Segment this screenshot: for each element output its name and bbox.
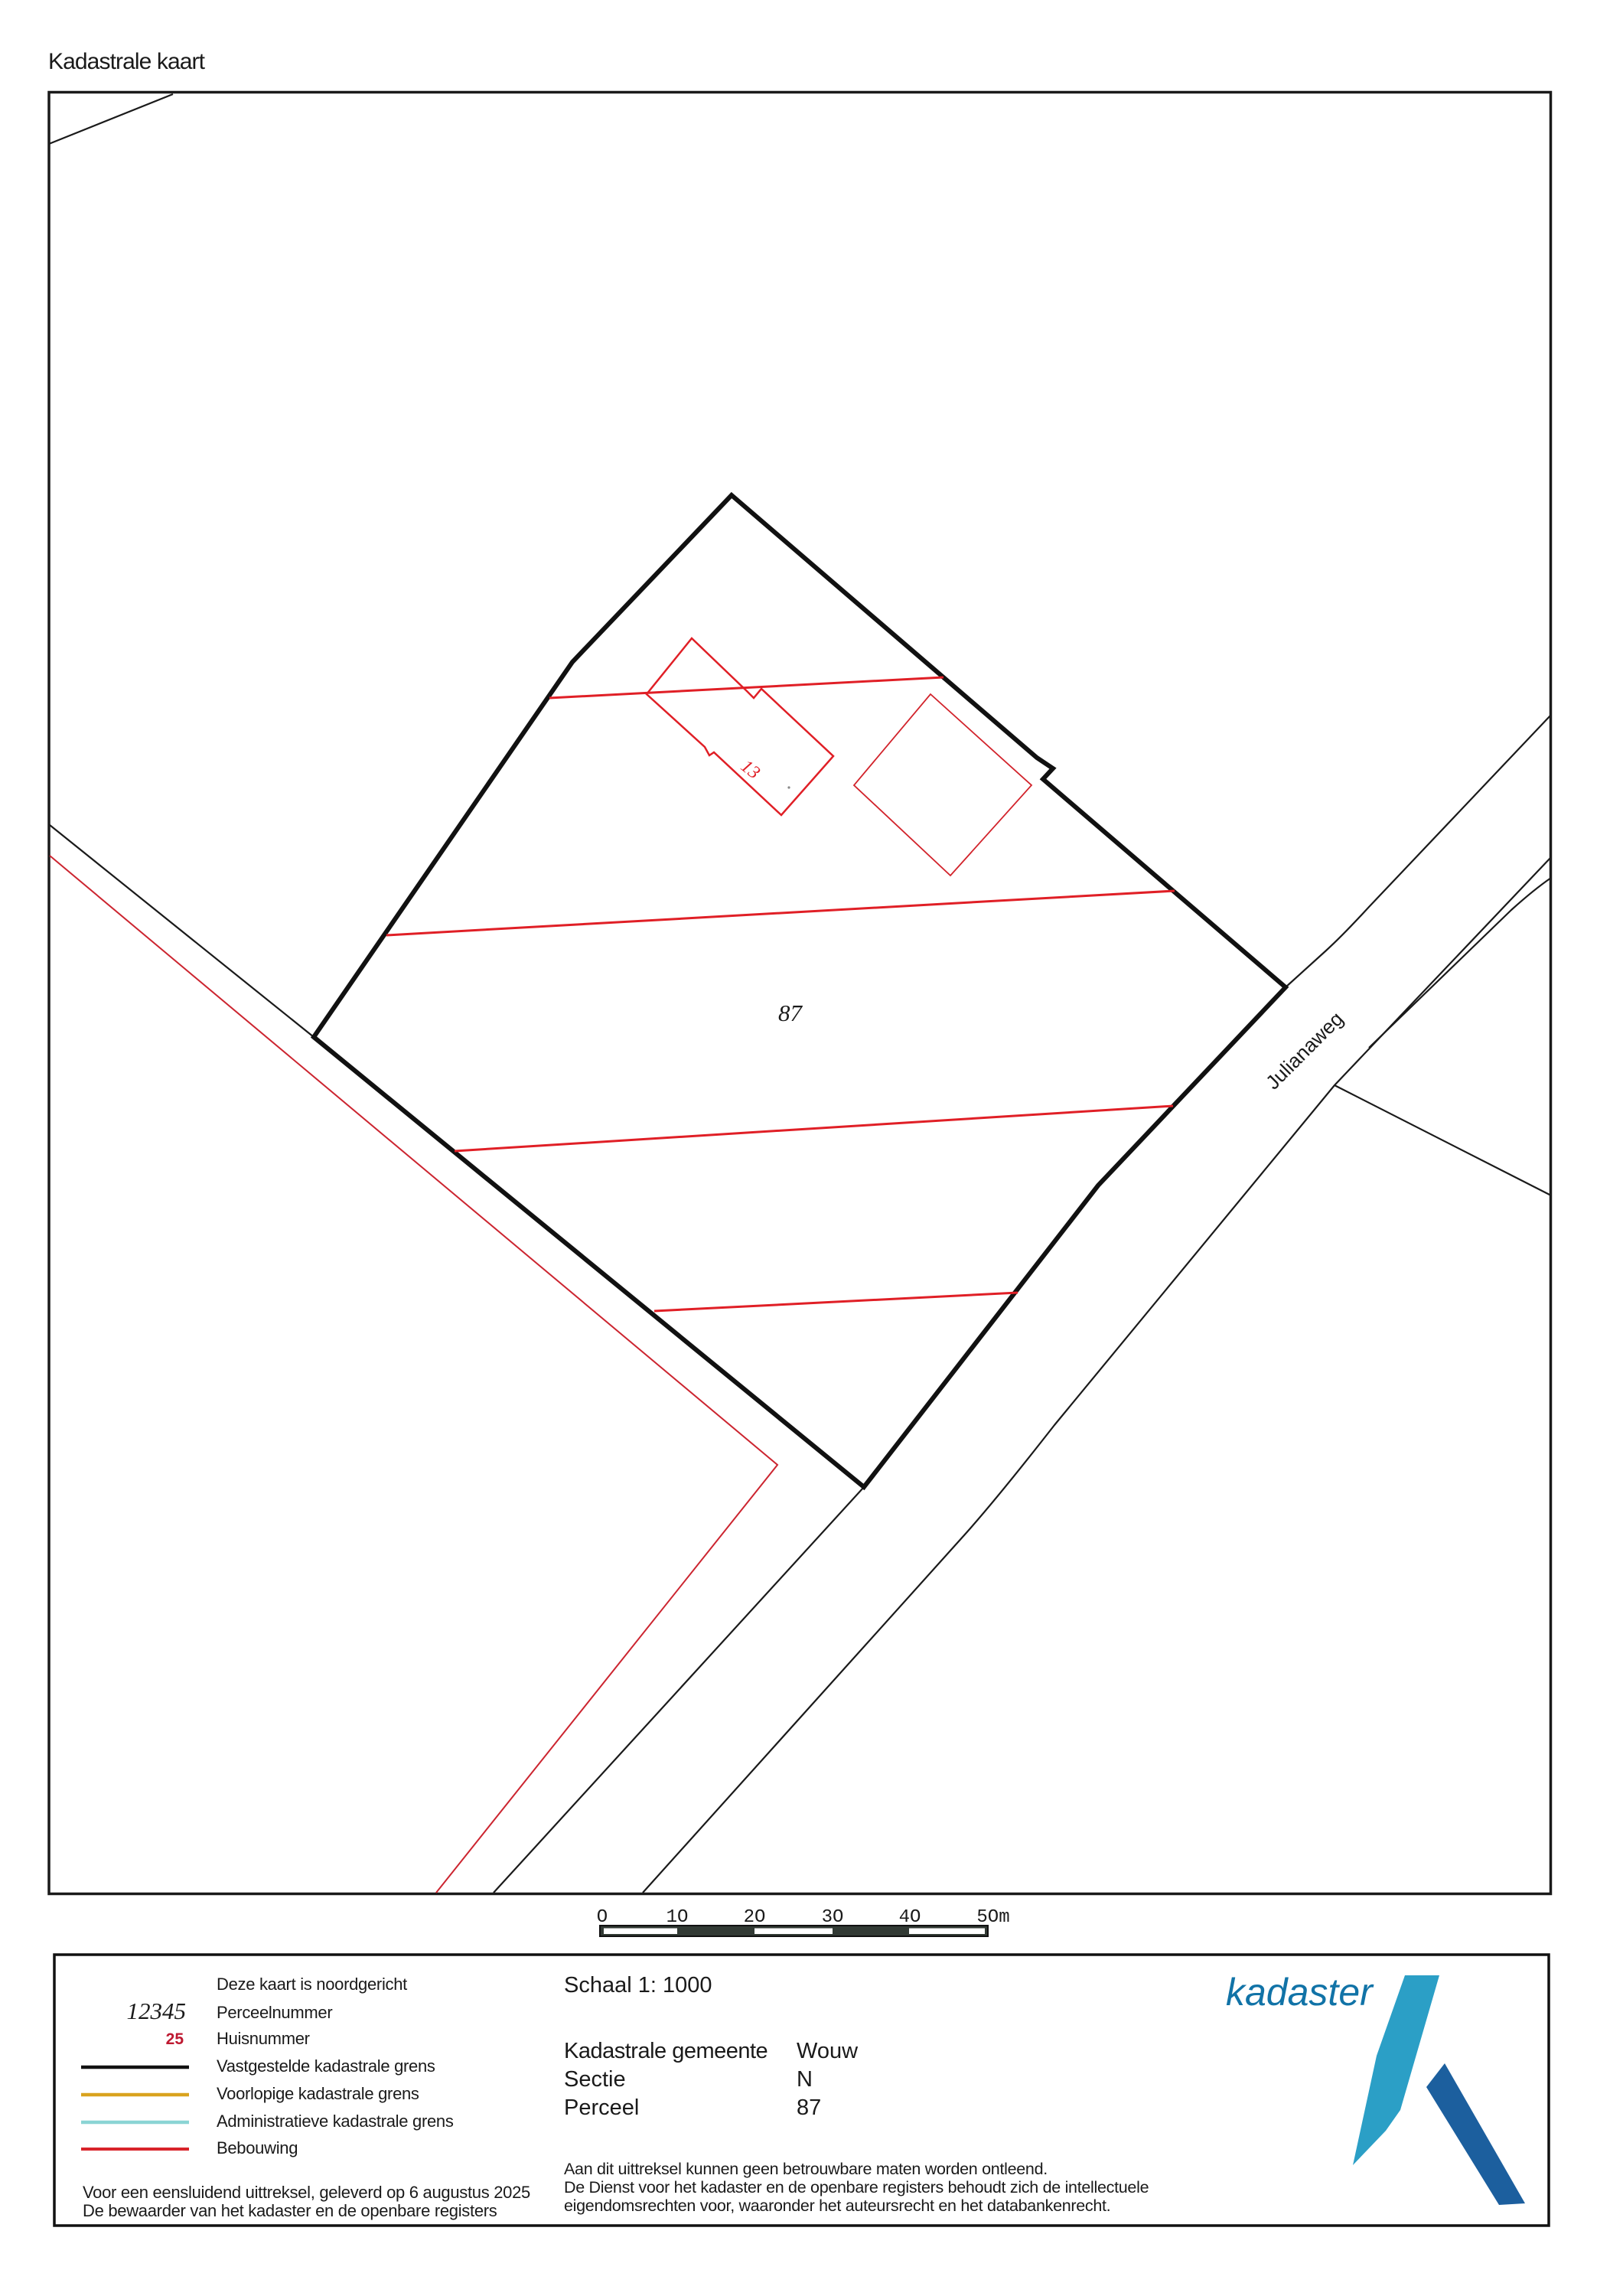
- svg-text:Voor een eensluidend uittrekse: Voor een eensluidend uittreksel, gelever…: [83, 2183, 530, 2202]
- svg-text:eigendomsrechten voor, waarond: eigendomsrechten voor, waaronder het aut…: [564, 2197, 1110, 2215]
- svg-text:N: N: [797, 2067, 813, 2092]
- svg-text:Deze kaart is noordgericht: Deze kaart is noordgericht: [217, 1975, 407, 1994]
- svg-text:Kadastrale gemeente: Kadastrale gemeente: [564, 2039, 768, 2063]
- svg-text:Vastgestelde kadastrale grens: Vastgestelde kadastrale grens: [217, 2056, 435, 2076]
- svg-text:Bebouwing: Bebouwing: [217, 2138, 298, 2157]
- svg-text:kadaster: kadaster: [1226, 1971, 1374, 2014]
- svg-text:Administratieve kadastrale gre: Administratieve kadastrale grens: [217, 2112, 454, 2131]
- svg-text:4O: 4O: [899, 1907, 921, 1928]
- svg-text:De bewaarder van het kadaster: De bewaarder van het kadaster en de open…: [83, 2201, 497, 2220]
- svg-text:12345: 12345: [127, 1998, 187, 2024]
- svg-text:1O: 1O: [666, 1907, 689, 1928]
- svg-text:Schaal 1: 1000: Schaal 1: 1000: [564, 1973, 712, 1998]
- svg-text:Huisnummer: Huisnummer: [217, 2029, 310, 2048]
- svg-text:87: 87: [778, 1000, 803, 1026]
- svg-text:87: 87: [797, 2095, 821, 2120]
- svg-text:Aan dit uittreksel kunnen geen: Aan dit uittreksel kunnen geen betrouwba…: [564, 2160, 1048, 2178]
- svg-text:Perceel: Perceel: [564, 2095, 639, 2120]
- svg-text:3O: 3O: [822, 1907, 844, 1928]
- svg-text:Kadastrale kaart: Kadastrale kaart: [48, 49, 206, 74]
- svg-text:Voorlopige kadastrale grens: Voorlopige kadastrale grens: [217, 2084, 419, 2103]
- svg-text:Perceelnummer: Perceelnummer: [217, 2003, 332, 2022]
- svg-text:De Dienst voor het kadaster en: De Dienst voor het kadaster en de openba…: [564, 2178, 1149, 2197]
- svg-text:Sectie: Sectie: [564, 2067, 626, 2092]
- svg-text:25: 25: [166, 2030, 184, 2048]
- svg-text:O: O: [597, 1907, 608, 1928]
- svg-text:Wouw: Wouw: [797, 2039, 859, 2063]
- svg-text:2O: 2O: [744, 1907, 766, 1928]
- svg-text:5Om: 5Om: [976, 1907, 1009, 1928]
